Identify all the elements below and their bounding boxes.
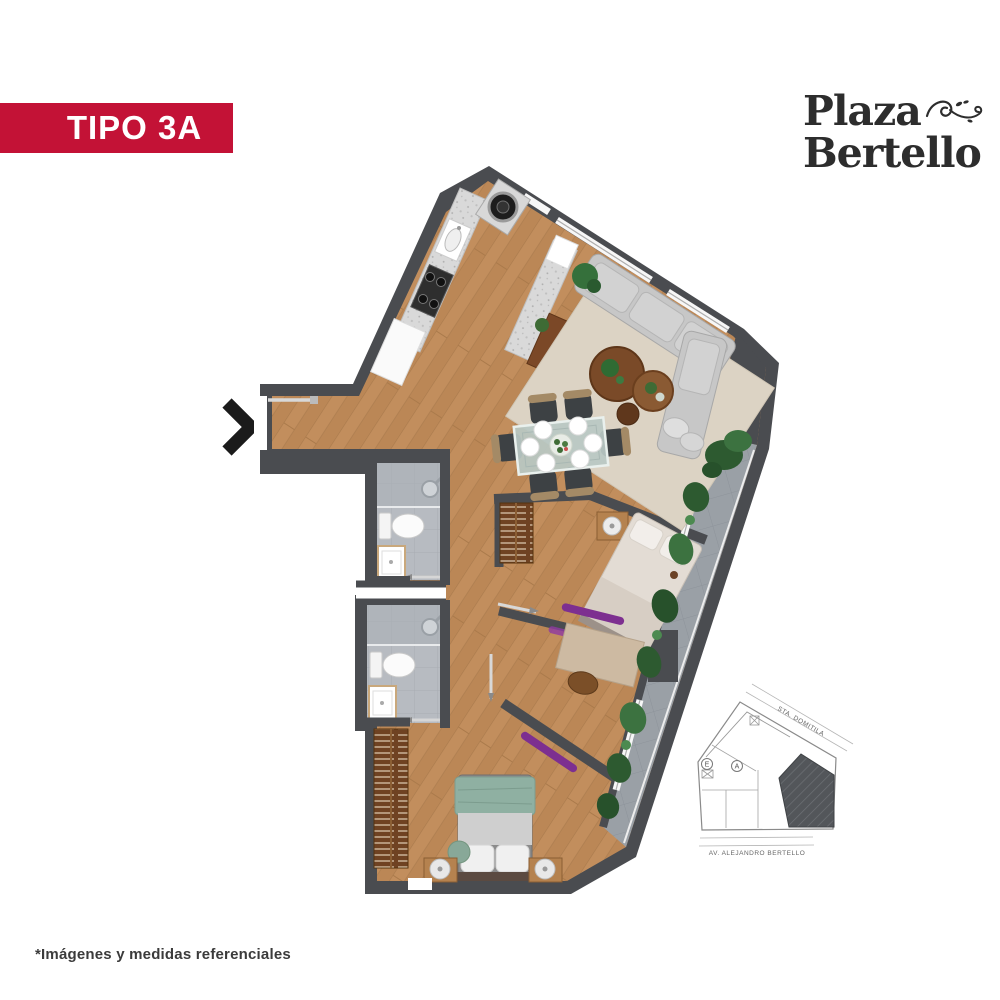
floor-plan-canvas: E A STA. DOMITILA AV. ALEJANDRO BERTELLO [0,0,1000,1000]
shower-head-icon [422,619,438,635]
closet [500,503,533,563]
duct-shaft [356,584,446,602]
bottom-opening [408,878,432,890]
floor-plan-page: { "header": { "unit_type_label": "TIPO 3… [0,0,1000,1000]
shower-head-icon [422,481,438,497]
bathroom-1 [377,462,447,580]
bathroom-vanity [369,686,396,720]
nightstand [529,858,562,882]
centerpiece [550,434,572,456]
closet [374,729,408,868]
toilet [370,652,415,678]
bathroom-vanity [378,546,405,579]
marker-a: A [735,764,740,771]
marker-e: E [705,762,710,769]
bathroom-2 [367,605,447,723]
chevron-right-icon [227,403,251,451]
street-bottom-label: AV. ALEJANDRO BERTELLO [709,850,806,857]
site-key-plan: E A STA. DOMITILA AV. ALEJANDRO BERTELLO [698,684,853,857]
bed [448,775,535,881]
toilet [379,513,424,539]
